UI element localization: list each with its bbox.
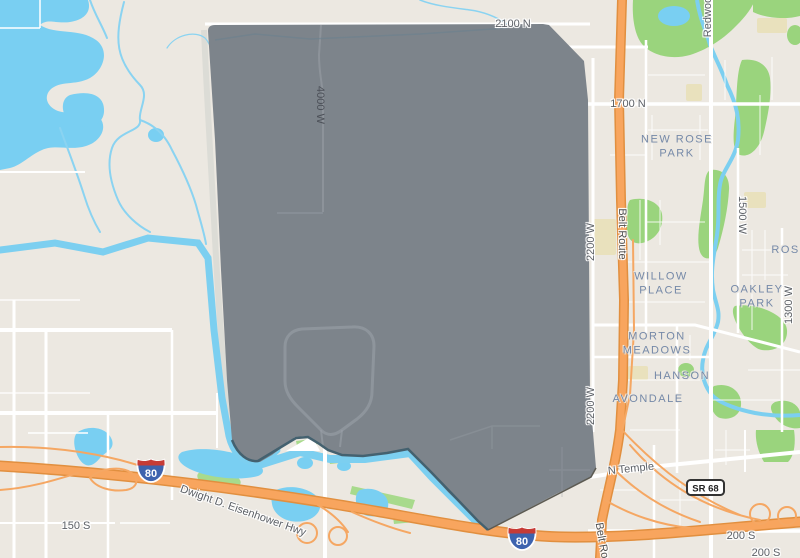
i80-shield-number: 80 bbox=[145, 468, 157, 480]
sr68-badge-text: SR 68 bbox=[692, 484, 718, 495]
map-viewport[interactable]: 80 80 SR 68 2100 N 1700 N 4000 W 2200 W … bbox=[0, 0, 800, 558]
i80-shield-number: 80 bbox=[516, 536, 528, 548]
sr68-badge: SR 68 bbox=[687, 480, 724, 495]
